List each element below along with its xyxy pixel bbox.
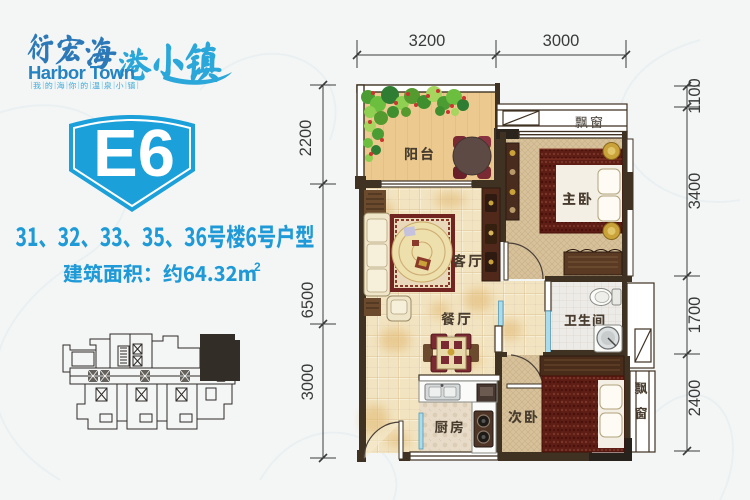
svg-text:3000: 3000 xyxy=(543,32,580,50)
svg-text:2200: 2200 xyxy=(297,120,315,157)
svg-text:3200: 3200 xyxy=(409,32,446,50)
svg-text:2400: 2400 xyxy=(686,380,704,417)
svg-text:E6: E6 xyxy=(93,116,175,191)
svg-text:1100: 1100 xyxy=(686,78,704,113)
svg-text:3000: 3000 xyxy=(299,364,317,401)
svg-text:3400: 3400 xyxy=(686,173,704,210)
svg-text:1700: 1700 xyxy=(686,297,704,334)
svg-text:Harbor Town: Harbor Town xyxy=(28,62,135,83)
svg-text:6500: 6500 xyxy=(299,282,317,319)
svg-text:2: 2 xyxy=(254,260,261,274)
